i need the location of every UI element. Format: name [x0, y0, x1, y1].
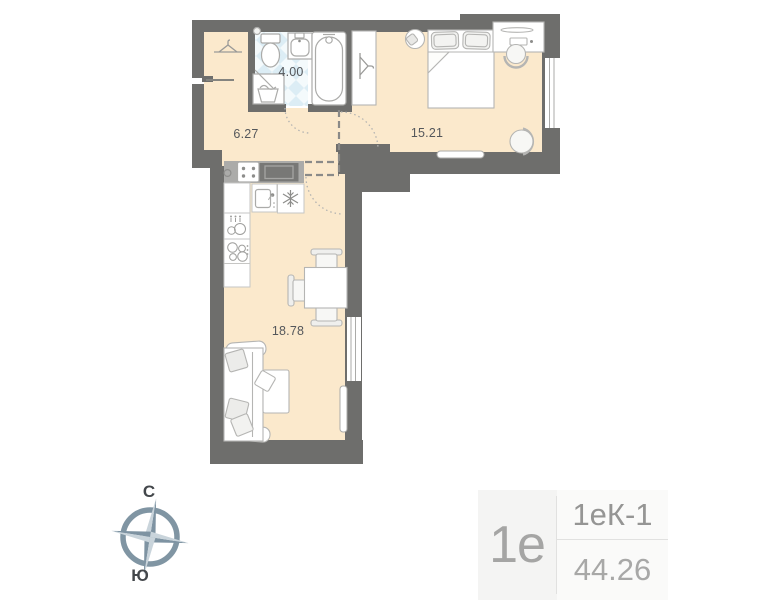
- vent-icon: [254, 28, 261, 35]
- unit-info-card: 1е 1еК-1 44.26: [478, 490, 668, 600]
- unit-total-area: 44.26: [557, 540, 668, 600]
- wall-living-right: [345, 156, 362, 464]
- room-area-label-living-kitchen: 18.78: [272, 324, 304, 338]
- fridge-icon: [278, 184, 305, 213]
- compass-north-label: С: [143, 482, 155, 502]
- hallway-floor: [204, 30, 250, 162]
- bathtub-icon: [312, 32, 346, 105]
- wall-bottom: [210, 440, 363, 464]
- living-window: [347, 317, 361, 381]
- compass-icon: [105, 492, 194, 581]
- dining-chair-top: [311, 249, 342, 269]
- wall-left-mid: [192, 84, 204, 152]
- wall-left-upper: [192, 20, 204, 78]
- kitchen-sink-icon: [252, 184, 277, 212]
- stove-icon: [238, 162, 260, 182]
- unit-layout-code: 1еК-1: [557, 490, 668, 539]
- kitchen-appliance-block: [260, 163, 299, 182]
- corridor-floor: [248, 108, 345, 162]
- laptop-icon: [510, 38, 527, 45]
- room-area-label-bedroom: 15.21: [411, 126, 443, 140]
- wall-bathroom-bottom-left: [248, 104, 286, 112]
- desk-lamp-icon: [501, 28, 533, 33]
- double-bed: [428, 30, 494, 108]
- unit-plan-type: 1е: [478, 490, 556, 600]
- unit-card-right-column: 1еК-1 44.26: [557, 490, 668, 600]
- wall-bedroom-stub: [336, 144, 390, 152]
- washbasin-icon: [288, 33, 312, 59]
- bedroom-window: [545, 58, 560, 128]
- room-area-label-hallway: 6.27: [233, 127, 258, 141]
- compass-south-label: Ю: [131, 566, 149, 586]
- toilet-icon: [261, 34, 280, 67]
- kitchen-cabinets: [224, 183, 250, 287]
- bedside-table: [406, 30, 425, 49]
- dining-table: [305, 268, 348, 309]
- wardrobe: [352, 31, 376, 105]
- wall-left-step: [192, 150, 222, 168]
- living-radiator: [340, 386, 347, 432]
- bedroom-radiator: [437, 151, 484, 158]
- dining-chair-bottom: [311, 306, 342, 326]
- wall-kitchen-left: [210, 166, 224, 444]
- room-area-label-bathroom: 4.00: [278, 65, 303, 79]
- floor-plan-card: 4.00 6.27 15.21 18.78 С Ю 1е 1еК-1 44.26: [0, 0, 760, 600]
